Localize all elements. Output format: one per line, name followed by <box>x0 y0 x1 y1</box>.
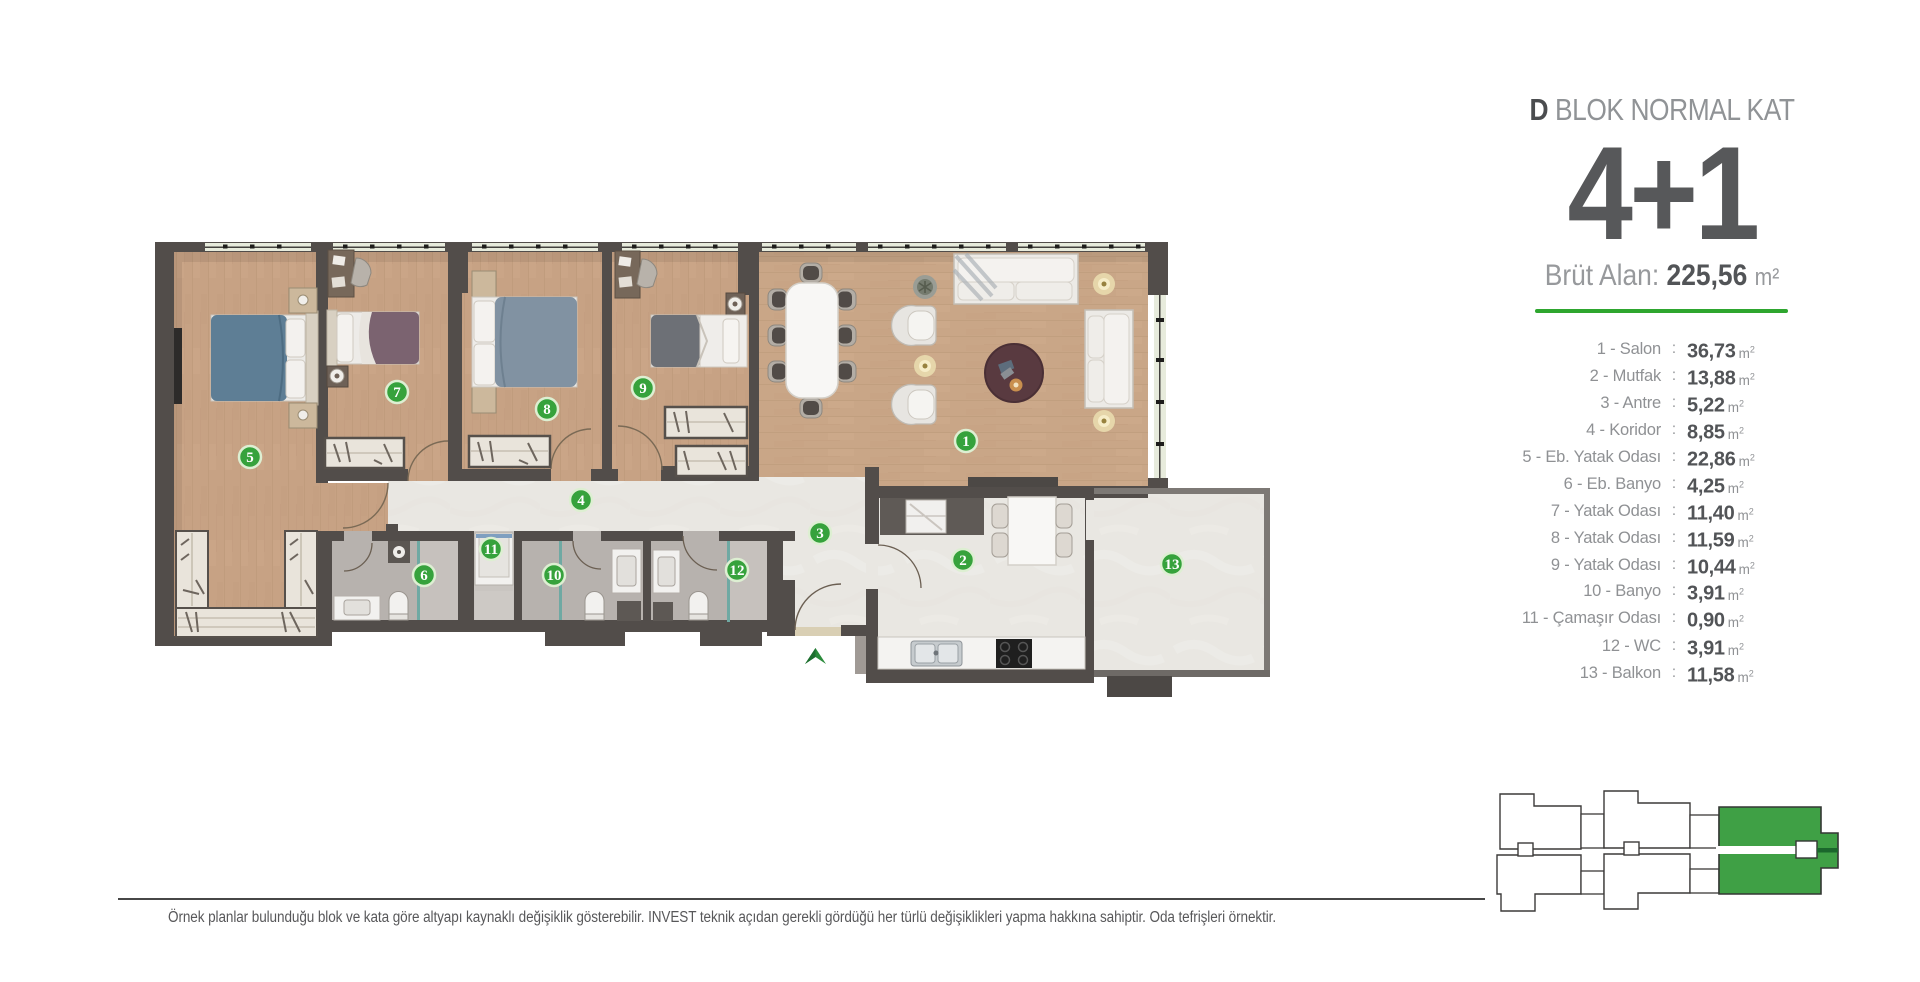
svg-text:4: 4 <box>577 493 585 509</box>
svg-text:9: 9 <box>639 381 647 397</box>
svg-text:8: 8 <box>543 402 551 418</box>
svg-text:3: 3 <box>816 526 824 542</box>
svg-text:2: 2 <box>959 553 967 569</box>
svg-text:7: 7 <box>393 385 401 401</box>
svg-text:12: 12 <box>730 563 745 579</box>
svg-text:13: 13 <box>1165 557 1180 573</box>
svg-text:5: 5 <box>246 450 254 466</box>
svg-text:11: 11 <box>484 542 498 558</box>
svg-text:10: 10 <box>547 568 562 584</box>
svg-text:6: 6 <box>420 568 428 584</box>
svg-text:1: 1 <box>962 434 970 450</box>
